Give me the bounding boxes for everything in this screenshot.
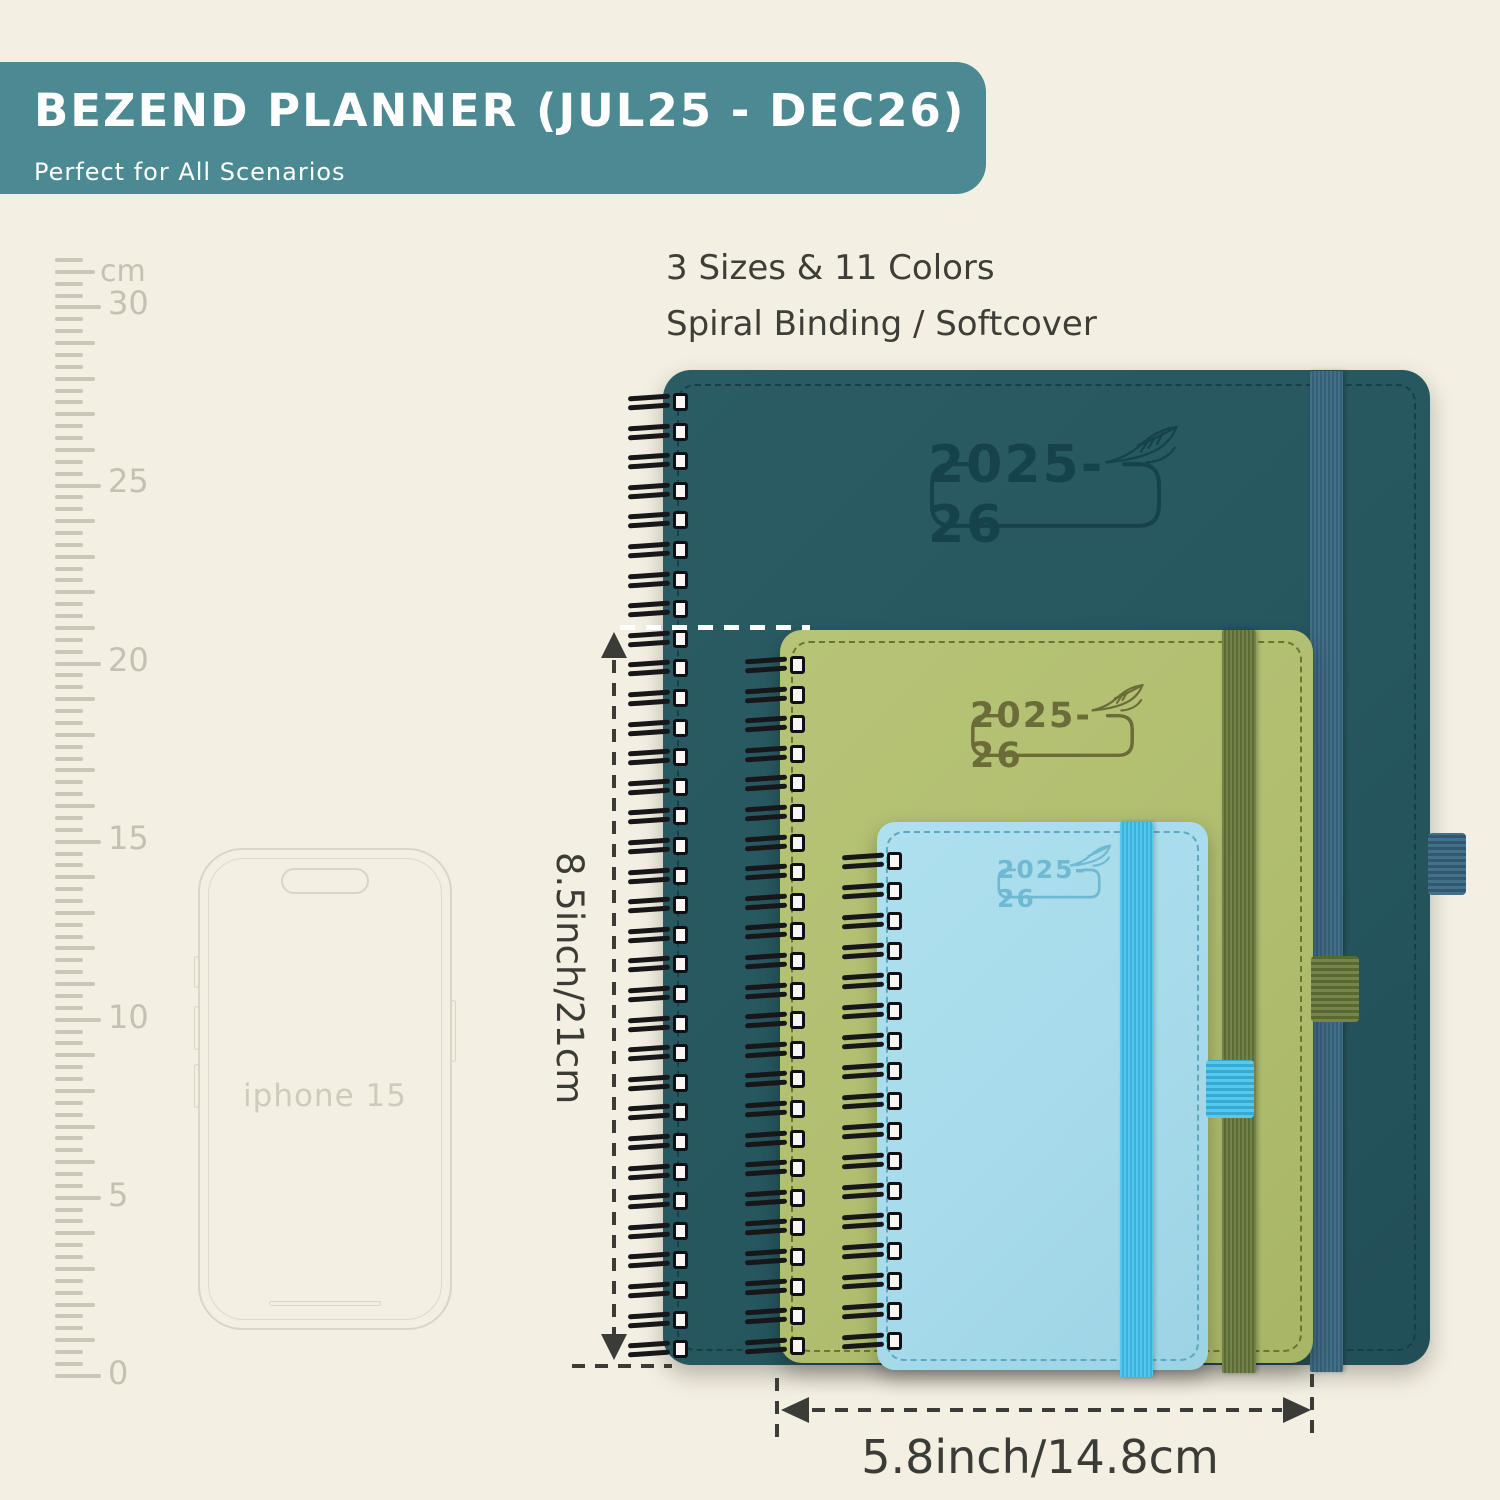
year-text-large: 2025-26 bbox=[928, 460, 1163, 530]
ruler-tick bbox=[55, 792, 83, 796]
ruler-tick bbox=[55, 1314, 83, 1318]
ruler-tick bbox=[55, 567, 83, 571]
ruler-tick bbox=[55, 353, 83, 357]
ruler-tick bbox=[55, 958, 83, 962]
spiral-coil bbox=[842, 942, 902, 962]
ruler-tick bbox=[55, 531, 83, 535]
ruler-tick bbox=[55, 685, 83, 689]
spiral-coil bbox=[745, 834, 805, 854]
iphone-volume-up-button bbox=[194, 1006, 199, 1050]
ruler-tick bbox=[55, 1160, 95, 1164]
ruler-tick bbox=[55, 555, 95, 559]
product-subtitle: Perfect for All Scenarios bbox=[34, 158, 346, 186]
ruler-mark-20: 20 bbox=[108, 641, 149, 679]
iphone-label: iphone 15 bbox=[200, 1078, 450, 1114]
ruler-tick bbox=[55, 863, 83, 867]
spiral-coil bbox=[745, 1307, 805, 1327]
ruler-tick bbox=[55, 1089, 95, 1093]
spiral-coil bbox=[628, 1133, 688, 1153]
spiral-coil bbox=[628, 896, 688, 916]
ruler-tick bbox=[55, 1077, 83, 1081]
year-text-small: 2025-26 bbox=[997, 868, 1101, 899]
spiral-coil bbox=[842, 1062, 902, 1082]
spiral-coil bbox=[745, 1218, 805, 1238]
height-dimension-label: 8.5inch/21cm bbox=[548, 852, 591, 1152]
extension-line-top-white bbox=[620, 625, 810, 630]
elastic-band-green bbox=[1222, 630, 1256, 1373]
spiral-coil bbox=[842, 1272, 902, 1292]
ruler-tick bbox=[55, 1101, 83, 1105]
spiral-coil bbox=[745, 1248, 805, 1268]
spiral-coil bbox=[842, 1122, 902, 1142]
spiral-coil bbox=[628, 1222, 688, 1242]
arrowhead-up bbox=[601, 632, 627, 658]
ruler-tick bbox=[55, 436, 83, 440]
ruler-tick bbox=[55, 1148, 83, 1152]
spiral-coil bbox=[842, 912, 902, 932]
spiral-coil bbox=[628, 1192, 688, 1212]
arrowhead-right bbox=[1283, 1397, 1311, 1423]
spiral-coil bbox=[842, 1152, 902, 1172]
spiral-coil bbox=[628, 807, 688, 827]
ruler-tick bbox=[55, 1362, 83, 1366]
ruler-tick bbox=[55, 1136, 83, 1140]
year-emblem-small: 2025-26 bbox=[997, 868, 1101, 899]
ruler-tick bbox=[55, 840, 101, 844]
ruler-tick bbox=[55, 1231, 95, 1235]
spiral-coil bbox=[628, 1163, 688, 1183]
ruler-tick bbox=[55, 1303, 95, 1307]
spiral-coil bbox=[842, 1302, 902, 1322]
ruler-tick bbox=[55, 1113, 83, 1117]
ruler-tick bbox=[55, 412, 95, 416]
iphone-outline: iphone 15 bbox=[198, 848, 452, 1330]
ruler-tick bbox=[55, 650, 83, 654]
ruler-tick bbox=[55, 1030, 83, 1034]
ruler-tick bbox=[55, 448, 95, 452]
ruler-tick bbox=[55, 911, 95, 915]
spiral-coil bbox=[628, 1251, 688, 1271]
ruler-tick bbox=[55, 1326, 83, 1330]
ruler-tick bbox=[55, 578, 83, 582]
spiral-coil bbox=[628, 659, 688, 679]
ruler-tick bbox=[55, 1255, 83, 1259]
ruler-tick bbox=[55, 982, 95, 986]
iphone-volume-down-button bbox=[194, 1064, 199, 1108]
ruler-tick bbox=[55, 377, 95, 381]
ruler-tick bbox=[55, 1243, 83, 1247]
ruler-tick bbox=[55, 270, 95, 274]
ruler-tick bbox=[55, 721, 83, 725]
ruler-tick bbox=[55, 400, 83, 404]
ruler-tick bbox=[55, 994, 83, 998]
ruler-tick bbox=[55, 828, 83, 832]
ruler-tick bbox=[55, 923, 83, 927]
ruler-tick bbox=[55, 875, 95, 879]
ruler-tick bbox=[55, 602, 83, 606]
spiral-coil bbox=[628, 630, 688, 650]
ruler-tick bbox=[55, 733, 95, 737]
ruler-tick bbox=[55, 673, 83, 677]
spiral-coil bbox=[628, 1340, 688, 1360]
ruler-tick bbox=[55, 1219, 83, 1223]
ruler-mark-25: 25 bbox=[108, 462, 149, 500]
ruler-tick bbox=[55, 1196, 101, 1200]
ruler-tick bbox=[55, 460, 83, 464]
spiral-coil bbox=[628, 482, 688, 502]
spiral-coil bbox=[842, 1212, 902, 1232]
spiral-coil bbox=[745, 1041, 805, 1061]
spiral-coil bbox=[745, 1159, 805, 1179]
spiral-coil bbox=[628, 926, 688, 946]
spiral-coil bbox=[745, 686, 805, 706]
ruler-tick bbox=[55, 804, 95, 808]
ruler-tick bbox=[55, 757, 83, 761]
ruler-tick bbox=[55, 543, 83, 547]
spiral-coil bbox=[745, 893, 805, 913]
elastic-band-teal bbox=[1310, 371, 1343, 1372]
spiral-coil bbox=[842, 1032, 902, 1052]
spiral-coil bbox=[745, 804, 805, 824]
ruler-tick bbox=[55, 614, 83, 618]
ruler-tick bbox=[55, 507, 83, 511]
spiral-coil bbox=[745, 952, 805, 972]
spiral-coil bbox=[745, 1100, 805, 1120]
extension-line-bottom bbox=[572, 1364, 672, 1368]
ruler-tick bbox=[55, 472, 83, 476]
spiral-coil bbox=[628, 689, 688, 709]
ruler-tick bbox=[55, 1125, 95, 1129]
ruler-tick bbox=[55, 1018, 101, 1022]
width-dimension-line bbox=[812, 1408, 1282, 1412]
ruler-tick bbox=[55, 317, 83, 321]
ruler-tick bbox=[55, 294, 83, 298]
ruler-tick bbox=[55, 946, 95, 950]
spiral-coil bbox=[628, 511, 688, 531]
ruler-tick bbox=[55, 638, 83, 642]
arrowhead-down bbox=[601, 1334, 627, 1360]
spiral-coil bbox=[745, 1278, 805, 1298]
ruler-tick bbox=[55, 329, 83, 333]
spiral-coil bbox=[842, 882, 902, 902]
spiral-coil bbox=[842, 972, 902, 992]
ruler-tick bbox=[55, 709, 83, 713]
ruler-tick bbox=[55, 816, 83, 820]
ruler-tick bbox=[55, 341, 95, 345]
spiral-coil bbox=[628, 748, 688, 768]
ruler-tick bbox=[55, 1053, 95, 1057]
spiral-coil bbox=[842, 852, 902, 872]
ruler-tick bbox=[55, 1041, 83, 1045]
feature-text: 3 Sizes & 11 Colors Spiral Binding / Sof… bbox=[666, 240, 1097, 352]
feature-line-binding: Spiral Binding / Softcover bbox=[666, 296, 1097, 352]
spiral-coil bbox=[745, 715, 805, 735]
spiral-coil bbox=[745, 922, 805, 942]
ruler-tick bbox=[55, 780, 83, 784]
ruler-tick bbox=[55, 852, 83, 856]
ruler-tick bbox=[55, 1350, 83, 1354]
ruler-mark-0: 0 bbox=[108, 1354, 128, 1392]
spiral-coil bbox=[628, 1074, 688, 1094]
width-dimension-label: 5.8inch/14.8cm bbox=[800, 1430, 1280, 1484]
ruler-tick bbox=[55, 970, 83, 974]
ruler-tick bbox=[55, 424, 83, 428]
ruler-tick bbox=[55, 745, 83, 749]
spiral-coil bbox=[628, 719, 688, 739]
spiral-coil bbox=[842, 1242, 902, 1262]
ruler-mark-5: 5 bbox=[108, 1176, 128, 1214]
ruler-tick bbox=[55, 1279, 83, 1283]
ruler-mark-15: 15 bbox=[108, 819, 149, 857]
spiral-coil bbox=[842, 1092, 902, 1112]
ruler-tick bbox=[55, 697, 95, 701]
ruler-tick bbox=[55, 365, 83, 369]
ruler-tick bbox=[55, 768, 95, 772]
ruler-tick bbox=[55, 1184, 83, 1188]
spiral-coil bbox=[628, 452, 688, 472]
title-banner: BEZEND PLANNER (JUL25 - DEC26) Perfect f… bbox=[0, 62, 986, 194]
spiral-coil bbox=[628, 423, 688, 443]
spiral-coil bbox=[745, 982, 805, 1002]
feature-line-sizes: 3 Sizes & 11 Colors bbox=[666, 240, 1097, 296]
spiral-coil bbox=[745, 745, 805, 765]
spiral-coil bbox=[745, 1011, 805, 1031]
pen-loop-teal bbox=[1428, 833, 1466, 895]
iphone-power-button bbox=[451, 1000, 456, 1062]
ruler-tick bbox=[55, 1065, 83, 1069]
year-emblem-medium: 2025-26 bbox=[970, 713, 1135, 758]
spiral-coil bbox=[628, 778, 688, 798]
spiral-coil bbox=[628, 985, 688, 1005]
spiral-coil bbox=[628, 867, 688, 887]
ruler-tick bbox=[55, 590, 95, 594]
spiral-coil bbox=[842, 1332, 902, 1352]
spiral-coil bbox=[628, 1103, 688, 1123]
ruler-tick bbox=[55, 1291, 83, 1295]
ruler-tick bbox=[55, 1208, 83, 1212]
ruler-tick bbox=[55, 1267, 95, 1271]
spiral-coil bbox=[745, 1337, 805, 1357]
dynamic-island-icon bbox=[281, 868, 369, 894]
pen-loop-blue bbox=[1206, 1060, 1254, 1118]
spiral-coil bbox=[745, 774, 805, 794]
spiral-coil bbox=[628, 1281, 688, 1301]
ruler-tick bbox=[55, 1006, 83, 1010]
spiral-coil bbox=[628, 571, 688, 591]
ruler-tick bbox=[55, 484, 101, 488]
ruler-tick bbox=[55, 935, 83, 939]
spiral-coil bbox=[842, 1002, 902, 1022]
ruler-tick bbox=[55, 305, 101, 309]
product-title: BEZEND PLANNER (JUL25 - DEC26) bbox=[34, 84, 965, 137]
spiral-coil bbox=[745, 1130, 805, 1150]
spiral-coil bbox=[745, 656, 805, 676]
spiral-coil bbox=[628, 955, 688, 975]
ruler-tick bbox=[55, 495, 83, 499]
ruler-tick bbox=[55, 899, 83, 903]
ruler-tick bbox=[55, 1338, 95, 1342]
spiral-coil bbox=[842, 1182, 902, 1202]
ruler-tick bbox=[55, 1374, 101, 1378]
product-infographic: BEZEND PLANNER (JUL25 - DEC26) Perfect f… bbox=[0, 0, 1500, 1500]
year-text-medium: 2025-26 bbox=[970, 713, 1135, 758]
iphone-mute-button bbox=[194, 956, 199, 988]
ruler-tick bbox=[55, 887, 83, 891]
ruler-tick bbox=[55, 519, 95, 523]
spiral-coil bbox=[628, 837, 688, 857]
spiral-coil bbox=[628, 1015, 688, 1035]
ruler-tick bbox=[55, 1172, 83, 1176]
ruler-tick bbox=[55, 626, 95, 630]
spiral-coil bbox=[628, 1311, 688, 1331]
ruler-tick bbox=[55, 282, 83, 286]
cm-ruler: cm 30 25 20 15 10 5 0 bbox=[38, 258, 208, 1388]
spiral-coil bbox=[628, 541, 688, 561]
iphone-speaker-line bbox=[269, 1301, 381, 1306]
spiral-coil bbox=[628, 393, 688, 413]
ruler-mark-10: 10 bbox=[108, 998, 149, 1036]
extension-line-left bbox=[775, 1378, 779, 1438]
pen-loop-green bbox=[1311, 956, 1359, 1022]
ruler-mark-30: 30 bbox=[108, 284, 149, 322]
year-emblem-large: 2025-26 bbox=[928, 460, 1163, 530]
spiral-coil bbox=[745, 1070, 805, 1090]
spiral-coil bbox=[628, 600, 688, 620]
ruler-tick bbox=[55, 662, 101, 666]
planner-small-cover: 2025-26 bbox=[877, 822, 1208, 1370]
spiral-coil bbox=[628, 1044, 688, 1064]
spiral-coil bbox=[745, 863, 805, 883]
spiral-coil bbox=[745, 1189, 805, 1209]
ruler-tick bbox=[55, 258, 83, 262]
elastic-band-blue bbox=[1120, 822, 1153, 1377]
height-dimension-line bbox=[612, 660, 616, 1334]
ruler-tick bbox=[55, 389, 83, 393]
arrowhead-left bbox=[781, 1397, 809, 1423]
